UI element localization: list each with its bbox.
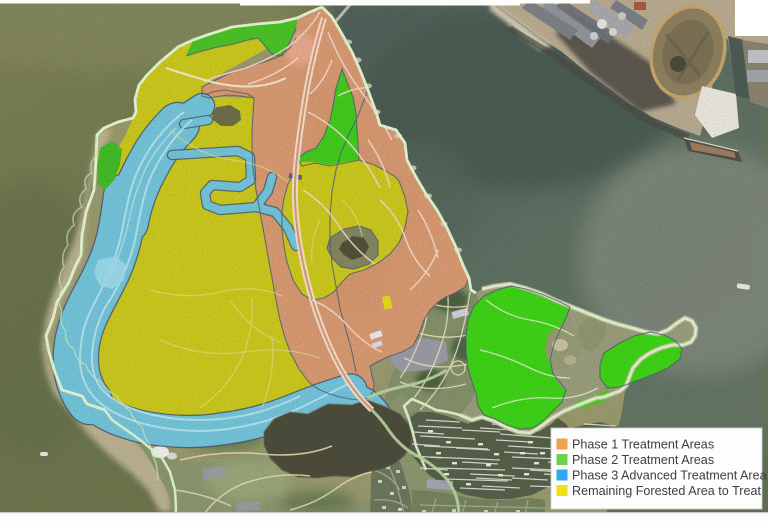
svg-text:Remaining Forested Area to Tre: Remaining Forested Area to Treat (572, 484, 762, 498)
svg-text:Phase 3 Advanced Treatment Are: Phase 3 Advanced Treatment Area (572, 469, 767, 483)
svg-text:Phase 2 Treatment Areas: Phase 2 Treatment Areas (572, 453, 714, 467)
svg-text:Phase 1 Treatment Areas: Phase 1 Treatment Areas (572, 438, 714, 452)
